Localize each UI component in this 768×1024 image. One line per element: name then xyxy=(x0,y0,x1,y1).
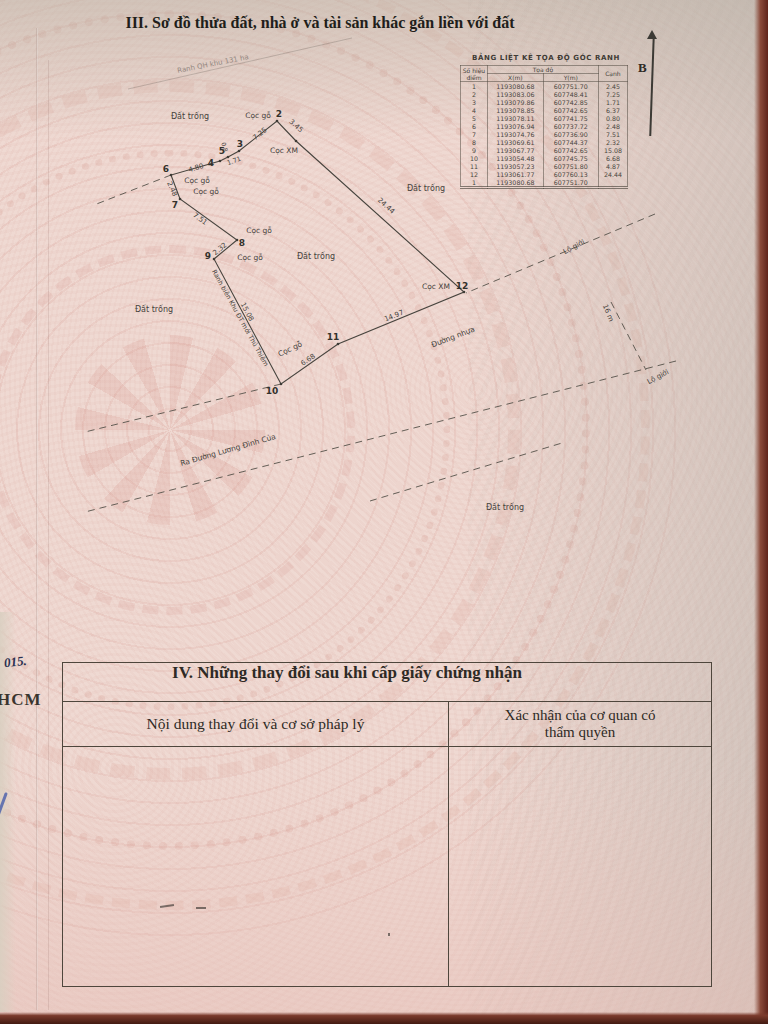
label-coc-go-p8: Cọc gỗ xyxy=(246,226,272,235)
coord-row: 91193067.77607742.6515.08 xyxy=(461,146,628,154)
coordinate-table-title: BẢNG LIỆT KÊ TỌA ĐỘ GÓC RANH xyxy=(460,54,632,62)
dim-3-4: 1.71 xyxy=(226,155,242,167)
dim-5-6: 4.80 xyxy=(187,162,204,174)
point-11: 11 xyxy=(327,332,340,342)
label-ra-duong: Ra Đường Lương Đình Của xyxy=(179,432,277,468)
coord-row: 101193054.48607745.756.68 xyxy=(461,154,628,162)
col-header-point: Số hiệu điểm xyxy=(461,66,488,82)
coord-row: 21193083.06607748.417.25 xyxy=(461,90,628,98)
label-coc-go-p2: Cọc gỗ xyxy=(245,111,271,120)
col-header-authority: Xác nhận của cơ quan có thẩm quyền xyxy=(449,702,711,746)
label-coc-go-p9: Cọc gỗ xyxy=(237,253,263,262)
label-lo-gioi-2: Lộ giới xyxy=(646,368,670,386)
point-4: 4 xyxy=(208,158,214,168)
point-6: 6 xyxy=(163,164,169,174)
col-header-edge: Cạnh xyxy=(598,66,627,82)
point-10: 10 xyxy=(266,386,279,396)
dim-6-7: 2.48 xyxy=(165,180,179,197)
coord-row: 41193078.85607742.656.37 xyxy=(461,106,628,114)
section-iv-title: IV. Những thay đổi sau khi cấp giấy chứn… xyxy=(63,663,711,702)
point-12: 12 xyxy=(456,281,469,291)
coord-row: 51193078.11607741.750.80 xyxy=(461,114,628,122)
label-coc-go-p10: Cọc gỗ xyxy=(276,339,303,358)
label-dat-trong-c: Đất trống xyxy=(297,252,335,261)
dim-road-width: 16 m xyxy=(601,303,615,323)
label-coc-go-p6: Cọc gỗ xyxy=(184,176,210,185)
label-duong-nhua: Đường nhựa xyxy=(430,325,476,350)
label-coc-go-p7: Cọc gỗ xyxy=(193,187,219,196)
col-header-y: Y(m) xyxy=(543,74,598,82)
section-iv-body xyxy=(63,747,711,986)
label-coc-xm-p1: Cọc XM xyxy=(270,146,298,155)
coord-row: 31193079.86607742.851.71 xyxy=(461,98,628,106)
label-ranh-bien: Ranh biên Khu ĐT mới Thủ Thiêm xyxy=(210,268,270,367)
coord-row: 121193061.77607760.1324.44 xyxy=(461,170,628,178)
coord-row: 71193074.76607736.907.51 xyxy=(461,130,628,138)
authority-cell xyxy=(449,747,711,986)
point-7: 7 xyxy=(172,200,178,210)
dim-1-2: 3.45 xyxy=(288,118,305,134)
coord-table-body: 11193080.68607751.702.4521193083.0660774… xyxy=(461,82,628,188)
label-dat-trong-nw: Đất trống xyxy=(171,112,209,121)
label-ranh-qh: Ranh QH khu 131 ha xyxy=(177,53,250,75)
dim-7-8: 7.51 xyxy=(191,211,208,227)
dim-10-11: 6.68 xyxy=(299,352,316,367)
coord-row: 81193069.61607744.372.32 xyxy=(461,138,628,146)
point-8: 8 xyxy=(239,238,245,248)
point-9: 9 xyxy=(205,251,211,261)
dim-11-12: 14.97 xyxy=(383,309,405,324)
coord-row: 111193057.23607751.804.87 xyxy=(461,162,628,170)
change-content-cell xyxy=(63,747,449,986)
section-iv-header-row: Nội dung thay đổi và cơ sở pháp lý Xác n… xyxy=(63,702,711,747)
point-2: 2 xyxy=(276,109,282,119)
dim-2-3: 7.25 xyxy=(251,126,268,142)
dim-4-5: 0.8 xyxy=(220,141,229,152)
label-dat-trong-s: Đất trống xyxy=(486,503,524,512)
coord-row: 11193080.68607751.70 xyxy=(461,178,628,188)
label-dat-trong-w: Đất trống xyxy=(135,305,173,314)
col-header-authority-text: Xác nhận của cơ quan có thẩm quyền xyxy=(495,707,665,741)
coord-row: 61193076.94607737.722.48 xyxy=(461,122,628,130)
dim-12-1: 24.44 xyxy=(376,196,396,215)
point-3: 3 xyxy=(237,139,243,149)
coord-row: 11193080.68607751.702.45 xyxy=(461,82,628,91)
certificate-page: III. Sơ đồ thửa đất, nhà ở và tài sản kh… xyxy=(0,0,768,1024)
label-coc-xm-p12: Cọc XM xyxy=(422,282,450,291)
label-lo-gioi-1: Lộ giới xyxy=(562,238,586,256)
col-header-coord: Tọa độ xyxy=(488,66,599,74)
col-header-x: X(m) xyxy=(488,74,544,82)
coordinate-table: Số hiệu điểm Tọa độ Cạnh X(m) Y(m) 11193… xyxy=(460,65,628,189)
label-dat-trong-e: Đất trống xyxy=(407,184,445,193)
col-header-change-content: Nội dung thay đổi và cơ sở pháp lý xyxy=(63,702,449,746)
section-iv-table: IV. Những thay đổi sau khi cấp giấy chứn… xyxy=(62,662,712,987)
dim-8-9: 2.32 xyxy=(211,241,228,257)
coordinate-table-section: BẢNG LIỆT KÊ TỌA ĐỘ GÓC RANH Số hiệu điể… xyxy=(460,54,632,189)
